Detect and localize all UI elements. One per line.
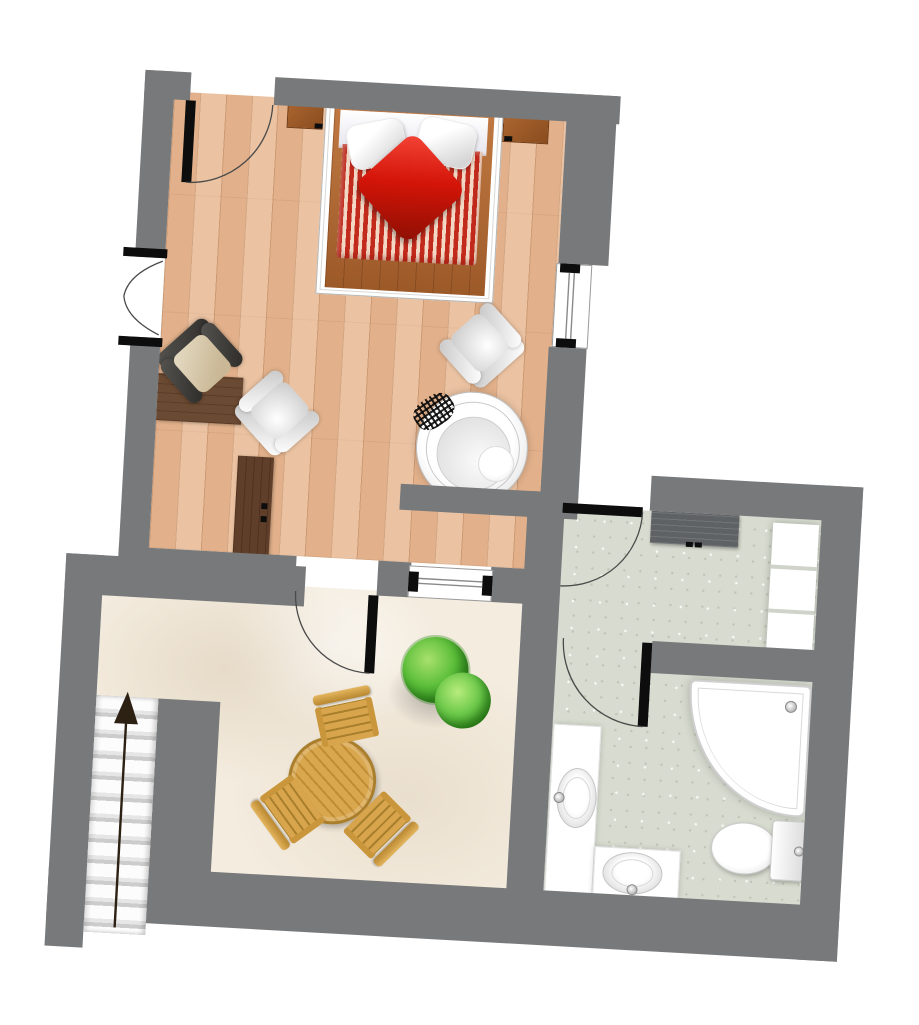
shelf-divider [771, 565, 817, 572]
nightstand-right-knob [504, 136, 512, 141]
wall-stairwell-block [148, 699, 221, 892]
french-window-left [121, 256, 165, 338]
wall-bedroom-bottom-c [489, 567, 536, 604]
sideboard [232, 456, 274, 562]
double-bed [315, 100, 504, 304]
floor-plan-page: { "meta": { "type": "floor-plan", "descr… [0, 0, 919, 1000]
sideboard-handle [260, 516, 266, 522]
window-jamb [408, 571, 419, 592]
wall-bedroom-bottom-b [377, 561, 412, 598]
patio-window [407, 565, 493, 602]
french-window-bar-bottom [118, 336, 162, 347]
nightstand-left-knob [315, 123, 323, 128]
vanity-knob [686, 542, 693, 547]
bedroom-window-right [552, 263, 593, 349]
window-jamb [556, 338, 576, 348]
window-jamb [482, 575, 493, 596]
window-jamb [560, 263, 580, 273]
sideboard-handle [261, 503, 267, 509]
shelf-unit [766, 523, 819, 655]
floor-plan [0, 0, 919, 1025]
staircase [83, 695, 158, 935]
vanity-knob [695, 542, 702, 547]
wall-bedroom-right-top [558, 93, 617, 266]
shelf-divider [768, 608, 814, 615]
